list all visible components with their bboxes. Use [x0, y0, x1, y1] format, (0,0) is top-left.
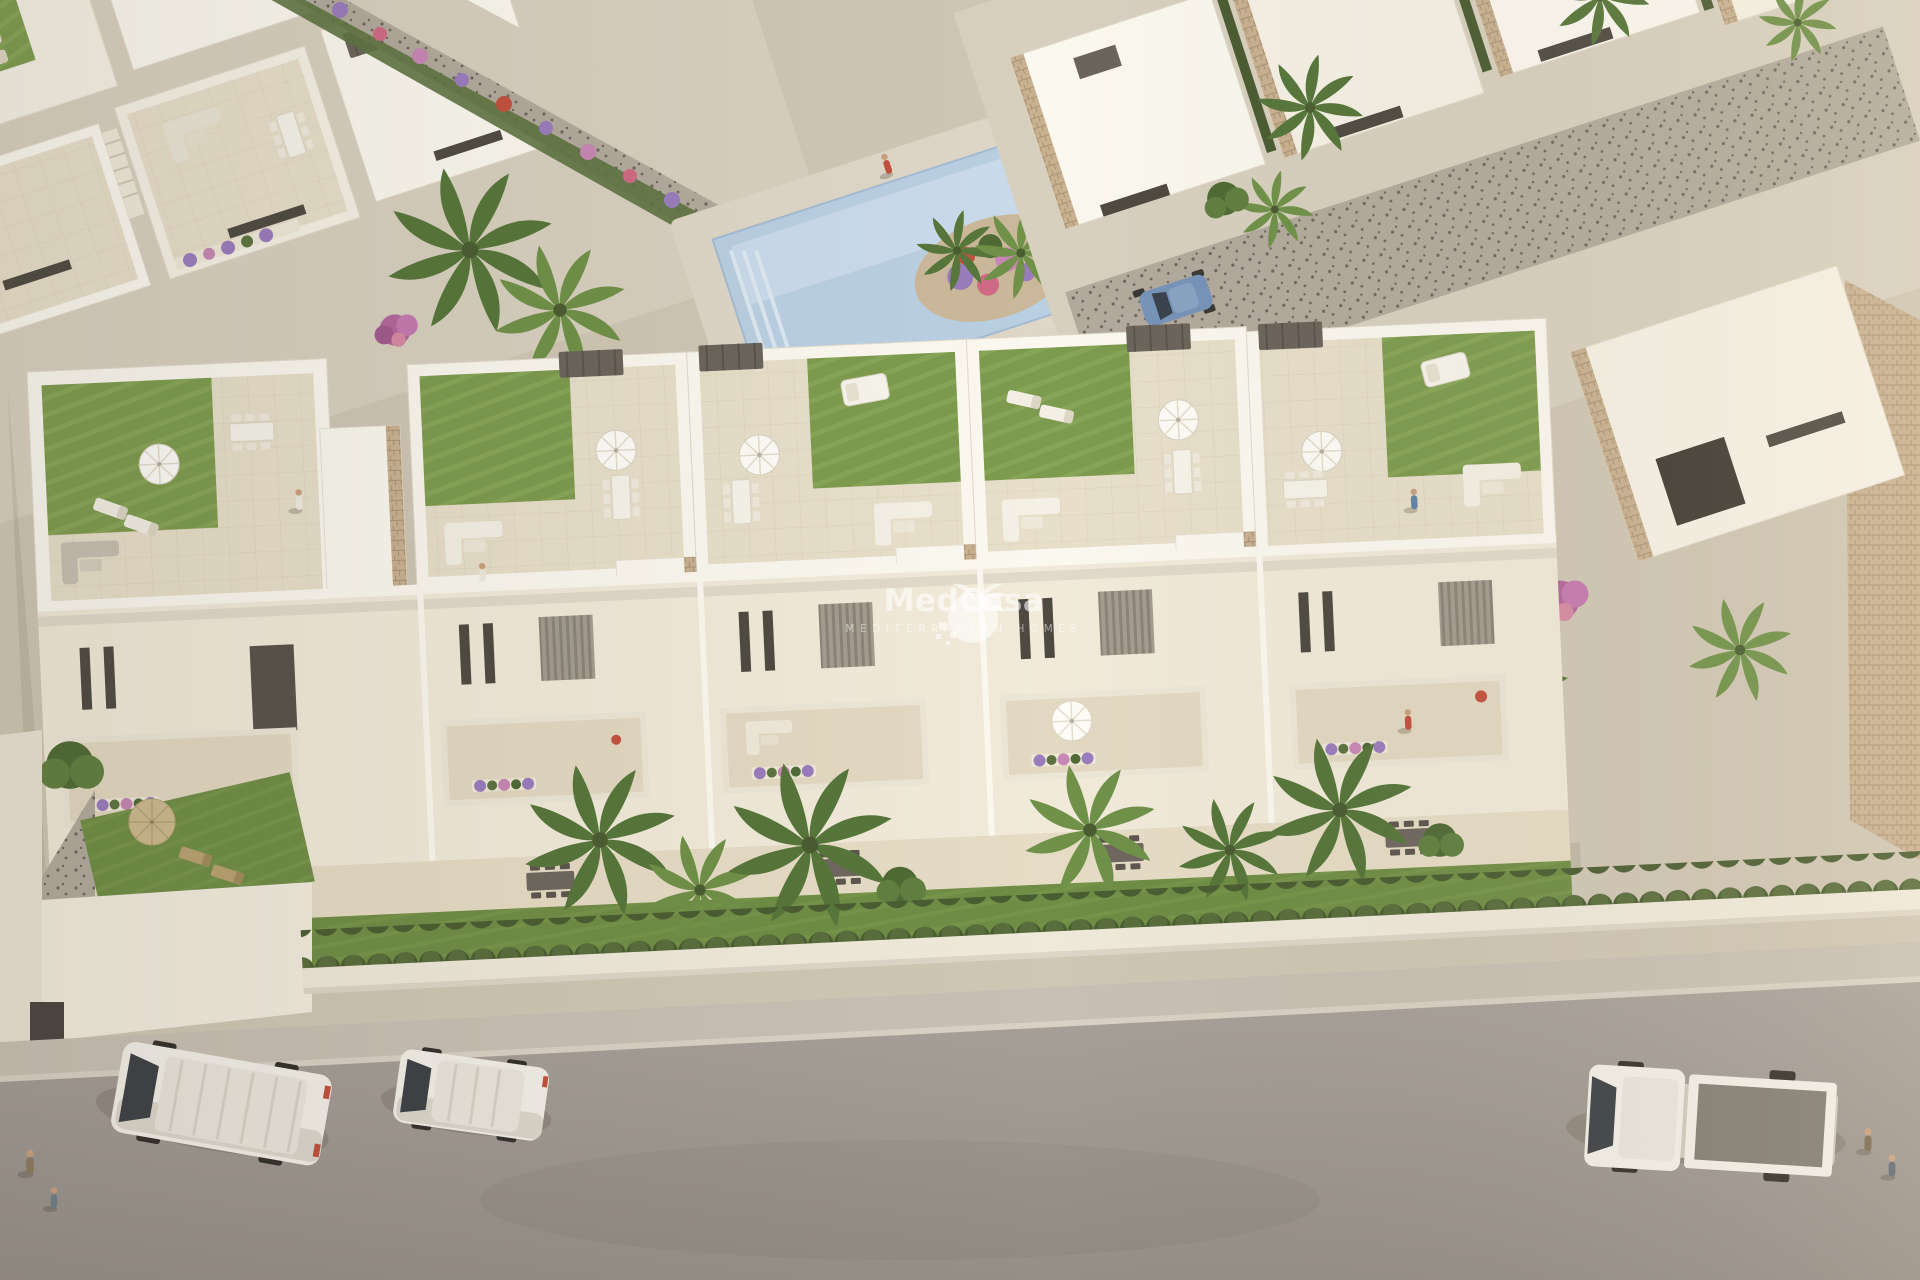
aerial-render: MedCasa MEDITERRANEAN HOMES: [0, 0, 1920, 1280]
render-canvas: [0, 0, 1920, 1280]
sunlight-overlay: [0, 0, 1920, 1280]
